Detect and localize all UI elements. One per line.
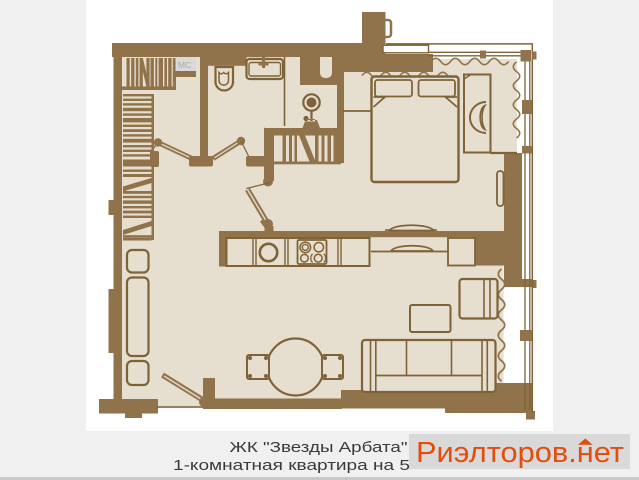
svg-text:1-комнатная квартира на 5: 1-комнатная квартира на 5 (173, 458, 410, 474)
svg-text:МС: МС (178, 60, 191, 70)
svg-text:ЖК "Звезды Арбата": ЖК "Звезды Арбата" (230, 440, 408, 456)
svg-text:Риэлторов.нет: Риэлторов.нет (416, 437, 624, 469)
